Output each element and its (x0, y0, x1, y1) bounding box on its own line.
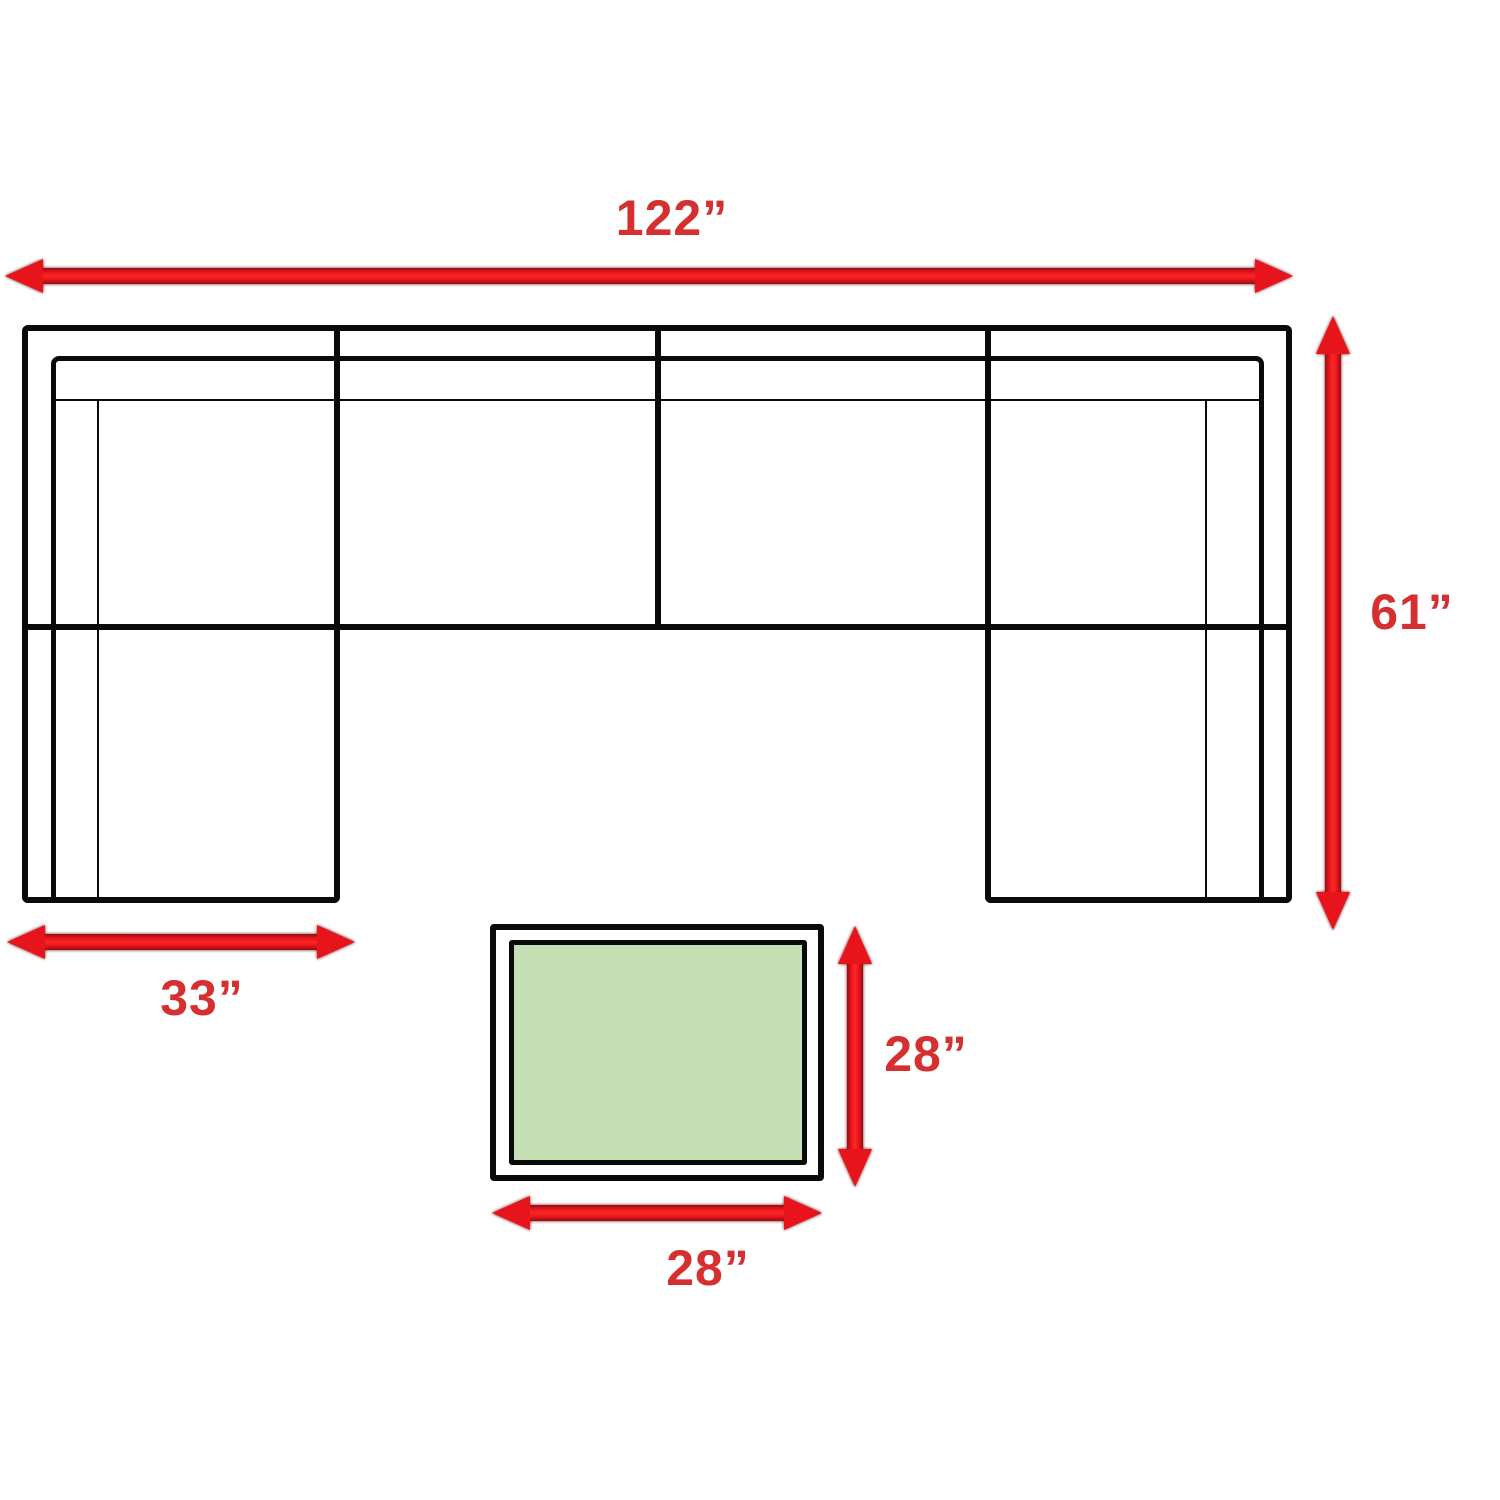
sofa-depth-label: 61” (1332, 587, 1492, 637)
seat-cushion-front-line (56, 399, 1264, 401)
backrest-frame-line (51, 356, 1264, 903)
chaise-width-label: 33” (102, 973, 302, 1023)
dimension-diagram-canvas: 122” 61” 33” 28” 28” (0, 0, 1500, 1500)
arrow-head-right-icon (784, 1196, 822, 1230)
arrow-head-down-icon (1316, 892, 1350, 930)
arrow-head-up-icon (838, 926, 872, 964)
sofa-width-label: 122” (512, 193, 832, 243)
chaise-width-arrow (7, 925, 355, 959)
arrow-shaft (45, 934, 317, 950)
arrow-shaft (530, 1205, 784, 1221)
arrow-head-left-icon (5, 259, 43, 293)
arrow-head-left-icon (7, 925, 45, 959)
arrow-shaft (43, 268, 1255, 284)
arrow-head-down-icon (838, 1149, 872, 1187)
arrow-head-up-icon (1316, 316, 1350, 354)
coffee-table-top (509, 940, 807, 1165)
arrow-head-left-icon (492, 1196, 530, 1230)
arrow-head-right-icon (317, 925, 355, 959)
sofa-width-arrow (5, 259, 1293, 293)
arrow-head-right-icon (1255, 259, 1293, 293)
seat-cushion-line-right (1205, 399, 1207, 899)
seat-cushion-line-left (97, 399, 99, 899)
table-width-arrow (492, 1196, 822, 1230)
table-width-label: 28” (628, 1243, 788, 1293)
table-depth-label: 28” (846, 1029, 1006, 1079)
